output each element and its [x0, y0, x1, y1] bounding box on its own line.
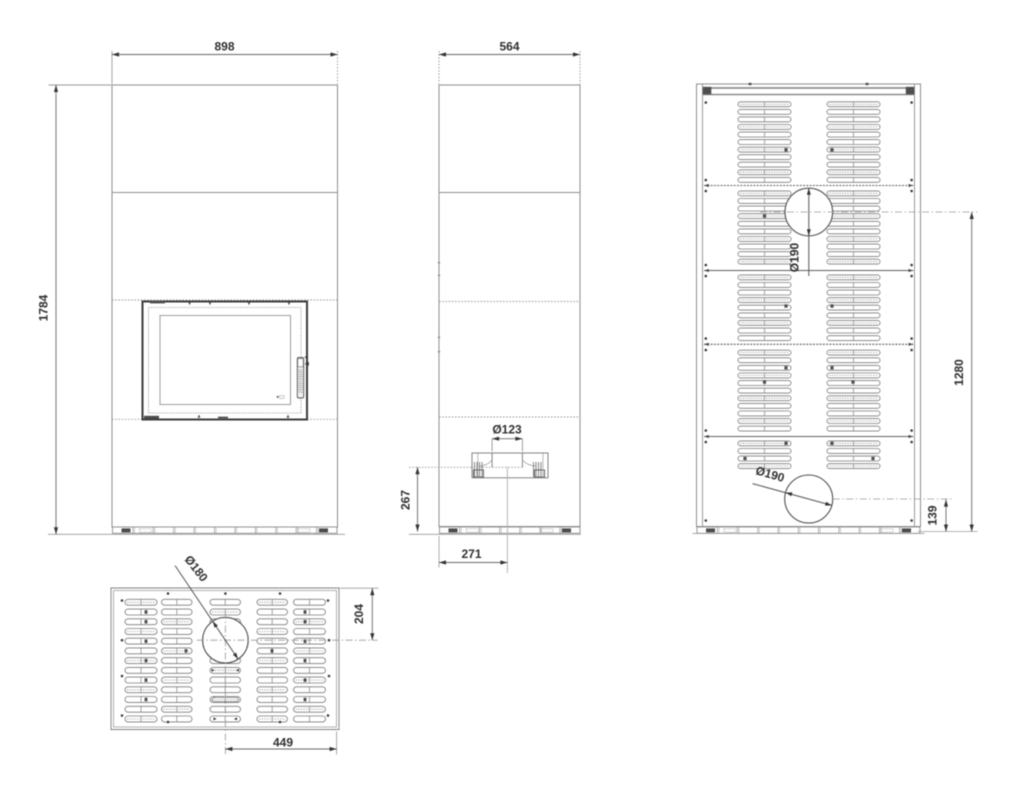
svg-text:Ø123: Ø123 [492, 423, 522, 437]
svg-text:1784: 1784 [37, 294, 51, 321]
svg-text:267: 267 [399, 490, 413, 510]
svg-text:204: 204 [352, 604, 366, 624]
svg-text:Ø190: Ø190 [788, 242, 802, 272]
svg-text:1280: 1280 [952, 359, 966, 386]
svg-text:449: 449 [273, 736, 293, 750]
svg-text:139: 139 [926, 505, 940, 525]
svg-text:271: 271 [461, 547, 481, 561]
svg-text:564: 564 [499, 40, 519, 54]
svg-text:898: 898 [214, 40, 234, 54]
